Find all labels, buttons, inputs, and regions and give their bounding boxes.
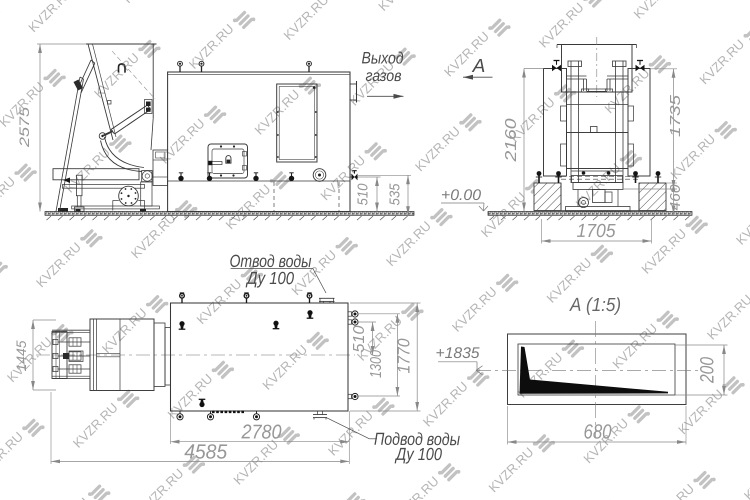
- svg-text:А (1:5): А (1:5): [569, 295, 621, 316]
- svg-text:1445: 1445: [13, 340, 29, 371]
- svg-text:2780: 2780: [241, 421, 282, 443]
- svg-text:Ду 100: Ду 100: [394, 444, 442, 464]
- svg-text:2575: 2575: [16, 107, 32, 149]
- svg-text:А: А: [472, 56, 486, 77]
- svg-text:200: 200: [697, 357, 719, 384]
- svg-text:460: 460: [667, 184, 684, 211]
- svg-text:680: 680: [583, 420, 612, 443]
- svg-text:1735: 1735: [667, 94, 684, 137]
- svg-text:4585: 4585: [184, 440, 228, 463]
- svg-text:1300: 1300: [368, 350, 385, 378]
- svg-text:газов: газов: [365, 68, 401, 85]
- svg-text:+0.00: +0.00: [441, 187, 481, 204]
- svg-text:Выход: Выход: [361, 49, 403, 67]
- svg-text:Ду 100: Ду 100: [245, 268, 294, 288]
- svg-text:+1835: +1835: [435, 345, 479, 362]
- svg-text:1705: 1705: [576, 221, 615, 242]
- svg-text:535: 535: [388, 183, 404, 206]
- svg-text:1770: 1770: [394, 338, 414, 373]
- svg-text:510: 510: [351, 325, 368, 352]
- svg-text:510: 510: [356, 184, 372, 206]
- svg-text:2160: 2160: [503, 118, 520, 163]
